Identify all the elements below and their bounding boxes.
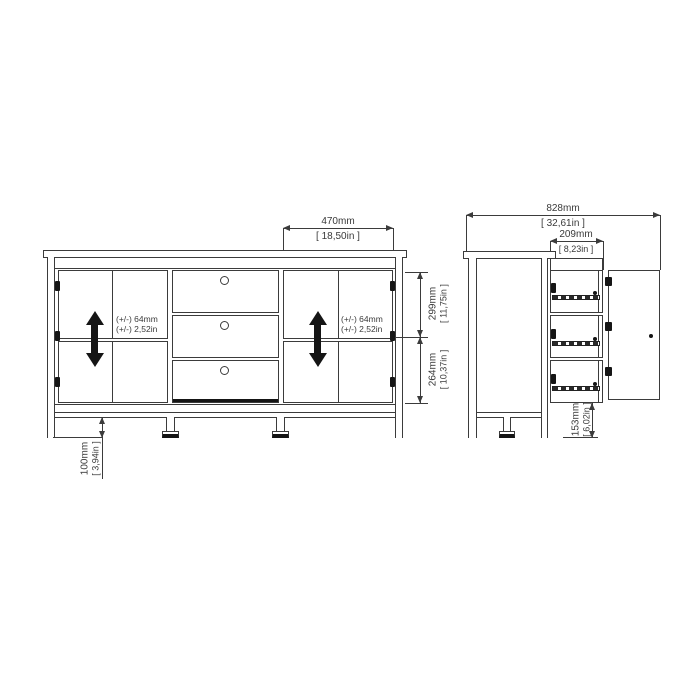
sv-drawer-slide-icon	[552, 295, 600, 300]
sv-mid-panel	[541, 258, 548, 438]
sv-front-bracket-icon	[605, 277, 612, 286]
sv-drawer-divider	[550, 312, 603, 316]
sv-extension-in: [ 8,23in ]	[536, 244, 616, 255]
sv-open-depth-in: [ 32,61in ]	[466, 218, 660, 229]
side-view: 828mm [ 32,61in ] 209mm [ 8,23in ] 153mm…	[0, 0, 700, 700]
sv-slide-end-dot-icon	[593, 291, 597, 295]
sv-front-bracket-icon	[605, 322, 612, 331]
sv-slide-end-dot-icon	[593, 337, 597, 341]
sv-slide-end-dot-icon	[593, 382, 597, 386]
technical-drawing: (+/-) 64mm (+/-) 2,52in (+/-) 64mm (+/-)…	[0, 0, 700, 700]
sv-drawer-clip-icon	[551, 374, 556, 384]
sv-knob-dot-icon	[649, 334, 653, 338]
sv-front-bracket-icon	[605, 367, 612, 376]
sv-drawer-clip-icon	[551, 283, 556, 293]
sv-foot-stem	[503, 417, 511, 432]
sv-bottom-height-mm: 153mm	[571, 390, 582, 450]
sv-open-depth-mm: 828mm	[466, 203, 660, 214]
sv-top-rail-line	[550, 270, 603, 271]
sv-side-panel	[468, 258, 477, 438]
sv-drawer-clip-icon	[551, 329, 556, 339]
sv-drawer-slide-icon	[552, 341, 600, 346]
sv-foot-cap	[499, 431, 515, 438]
sv-drawer-divider	[550, 357, 603, 361]
sv-cavity-inner-line	[598, 270, 599, 403]
sv-dim-ext-line	[660, 215, 661, 270]
sv-dim-line-open-depth	[466, 215, 660, 216]
sv-extension-mm: 209mm	[536, 229, 616, 240]
sv-bottom-height-in: [ 6,02in ]	[582, 390, 593, 450]
